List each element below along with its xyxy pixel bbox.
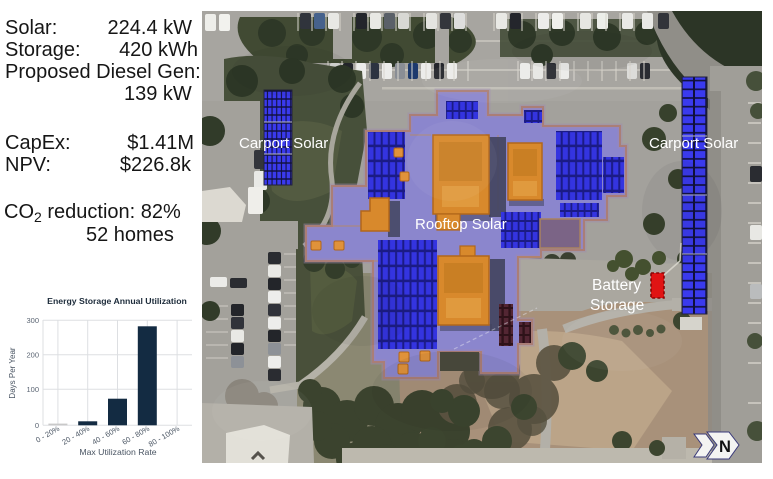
svg-text:Max Utilization Rate: Max Utilization Rate: [79, 447, 156, 457]
svg-text:200: 200: [26, 351, 39, 360]
svg-text:Carport Solar: Carport Solar: [649, 135, 738, 152]
svg-text:Rooftop Solar: Rooftop Solar: [415, 216, 507, 233]
svg-text:Energy Storage Annual Utilizat: Energy Storage Annual Utilization: [47, 296, 187, 306]
svg-text:40 - 60%: 40 - 60%: [90, 424, 121, 447]
svg-text:0: 0: [35, 421, 39, 430]
svg-text:60 - 80%: 60 - 80%: [120, 424, 151, 447]
svg-text:80 - 100%: 80 - 100%: [147, 424, 181, 449]
svg-text:Battery: Battery: [592, 277, 641, 294]
svg-text:300: 300: [26, 316, 39, 325]
svg-text:Days Per Year: Days Per Year: [8, 347, 17, 398]
svg-text:N: N: [719, 438, 731, 456]
svg-text:100: 100: [26, 385, 39, 394]
svg-text:Carport Solar: Carport Solar: [239, 135, 328, 152]
svg-text:20 - 40%: 20 - 40%: [60, 424, 91, 447]
